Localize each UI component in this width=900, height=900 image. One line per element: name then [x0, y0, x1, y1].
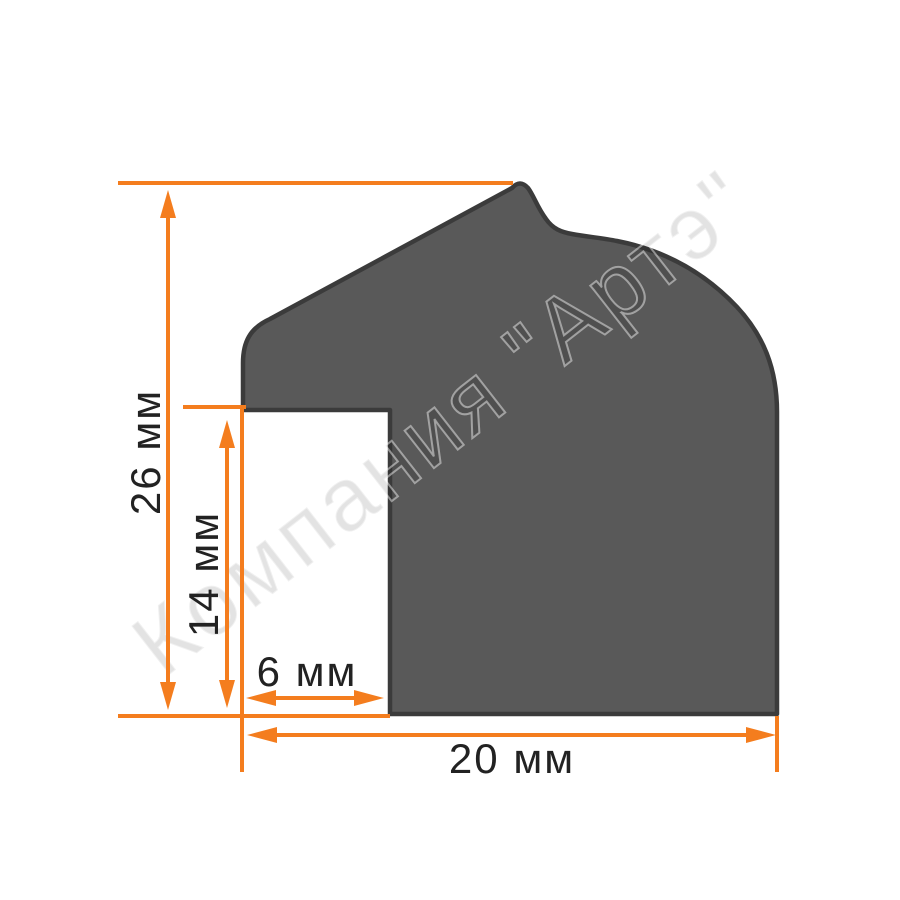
- dim-label-rebate-height: 14 мм: [183, 511, 225, 637]
- dim-label-rebate-width: 6 мм: [257, 651, 358, 693]
- drawing-canvas: Компания "Артэ": [0, 0, 900, 900]
- dim-label-total-height: 26 мм: [125, 389, 167, 515]
- dim-label-total-width: 20 мм: [449, 738, 575, 780]
